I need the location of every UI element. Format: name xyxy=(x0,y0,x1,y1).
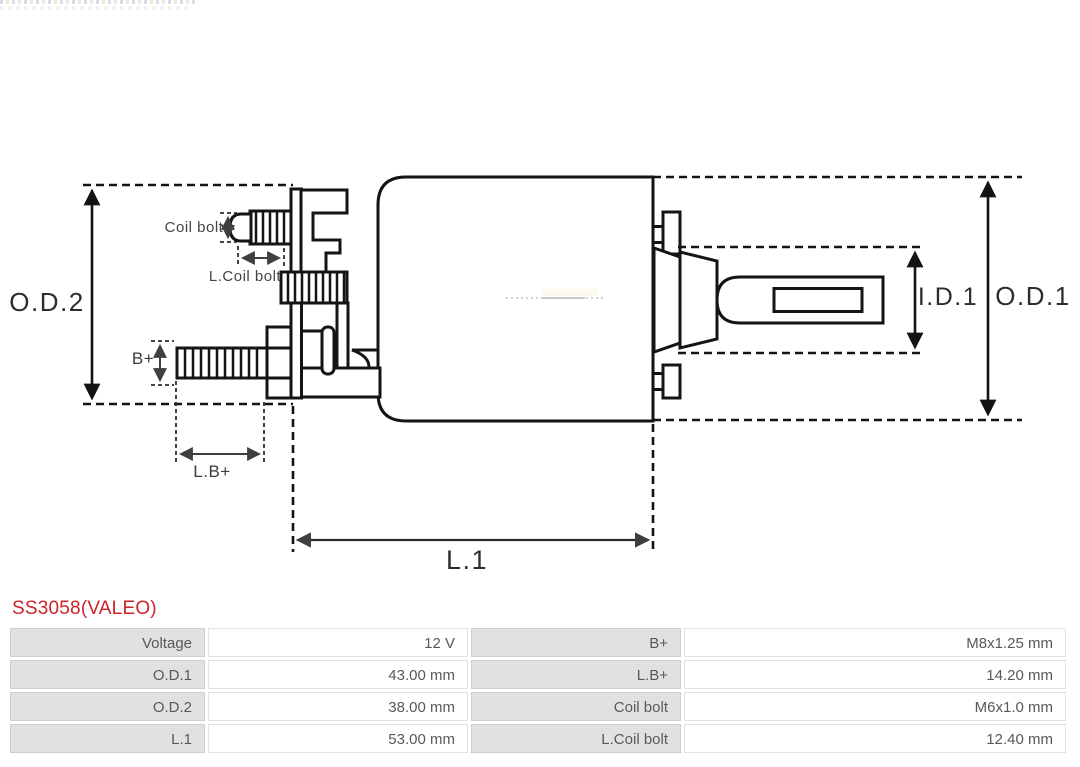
label-od2: O.D.2 xyxy=(9,287,84,317)
label-b-plus: B+ xyxy=(132,349,154,368)
pill-post xyxy=(322,327,334,374)
spec-value: 53.00 mm xyxy=(208,724,468,753)
label-l1: L.1 xyxy=(446,545,488,575)
spec-label: L.1 xyxy=(10,724,205,753)
spec-label: Coil bolt xyxy=(471,692,681,721)
table-row: Voltage 12 V B+ M8x1.25 mm xyxy=(10,628,1066,657)
b-plus-nut xyxy=(267,327,293,398)
spec-label: Voltage xyxy=(10,628,205,657)
flange-bottom-plate xyxy=(294,368,380,397)
label-coil-bolt: Coil bolt xyxy=(165,219,224,236)
small-dimension-lines xyxy=(151,213,284,462)
label-id1: I.D.1 xyxy=(918,283,978,311)
top-bolt-head xyxy=(663,212,680,254)
spec-value: M6x1.0 mm xyxy=(684,692,1066,721)
spec-value: 38.00 mm xyxy=(208,692,468,721)
table-row: O.D.2 38.00 mm Coil bolt M6x1.0 mm xyxy=(10,692,1066,721)
plunger-slot xyxy=(774,289,862,312)
upper-block xyxy=(301,190,347,272)
spec-label: O.D.1 xyxy=(10,660,205,689)
spec-value: 12.40 mm xyxy=(684,724,1066,753)
spec-value: 14.20 mm xyxy=(684,660,1066,689)
spec-value: 12 V xyxy=(208,628,468,657)
flange-arm xyxy=(337,303,348,368)
spec-label: B+ xyxy=(471,628,681,657)
plunger-cone-a xyxy=(654,248,680,352)
label-od1: O.D.1 xyxy=(995,281,1070,311)
solenoid-body xyxy=(177,177,883,421)
main-cylinder xyxy=(378,177,653,421)
plunger-cone-b xyxy=(680,252,717,348)
solenoid-technical-drawing: O.D.2 O.D.1 I.D.1 L.1 B+ L.B+ Coil bolt … xyxy=(0,0,1080,590)
table-row: L.1 53.00 mm L.Coil bolt 12.40 mm xyxy=(10,724,1066,753)
spec-value: 43.00 mm xyxy=(208,660,468,689)
table-row: O.D.1 43.00 mm L.B+ 14.20 mm xyxy=(10,660,1066,689)
spec-label: O.D.2 xyxy=(10,692,205,721)
bottom-bolt-head xyxy=(663,365,680,398)
product-page: O.D.2 O.D.1 I.D.1 L.1 B+ L.B+ Coil bolt … xyxy=(0,0,1080,767)
coil-bolt-head xyxy=(230,214,251,241)
b-plus-stud xyxy=(177,348,267,378)
spec-label: L.B+ xyxy=(471,660,681,689)
spec-value: M8x1.25 mm xyxy=(684,628,1066,657)
part-title: SS3058(VALEO) xyxy=(12,598,157,620)
label-l-coil-bolt: L.Coil bolt xyxy=(209,268,282,285)
label-lb-plus: L.B+ xyxy=(193,462,230,481)
spec-table: Voltage 12 V B+ M8x1.25 mm O.D.1 43.00 m… xyxy=(10,628,1066,753)
spec-label: L.Coil bolt xyxy=(471,724,681,753)
